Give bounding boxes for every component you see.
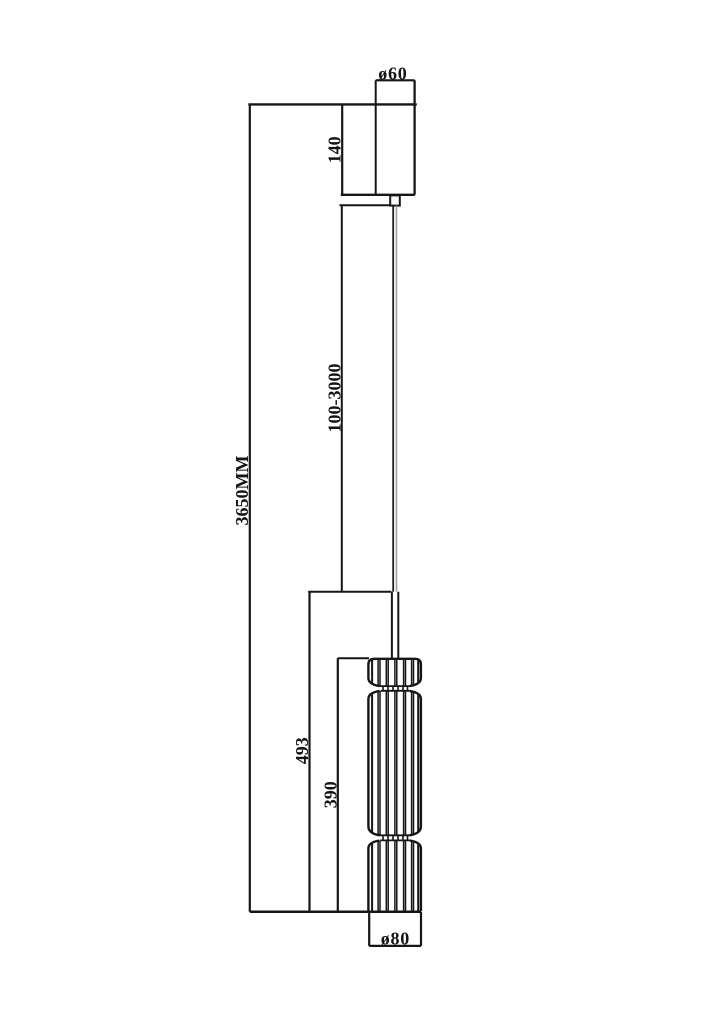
svg-text:390: 390: [321, 781, 341, 808]
svg-text:100-3000: 100-3000: [325, 364, 345, 433]
svg-text:140: 140: [325, 136, 345, 163]
svg-text:3650MM: 3650MM: [232, 456, 252, 526]
svg-text:ø80: ø80: [381, 928, 410, 948]
svg-text:ø60: ø60: [378, 63, 407, 83]
svg-text:493: 493: [292, 737, 312, 764]
